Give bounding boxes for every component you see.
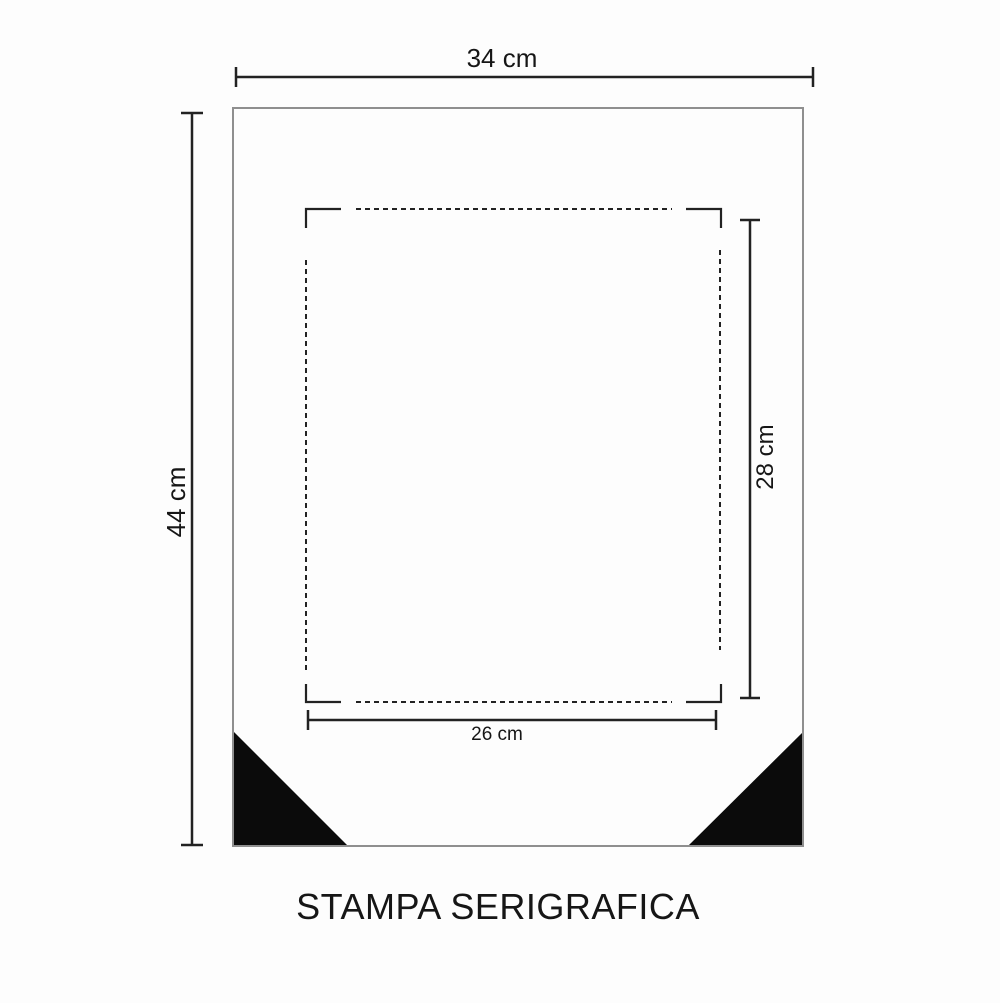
technical-drawing [0,0,1000,1003]
diagram-title: STAMPA SERIGRAFICA [198,888,798,926]
sheet-width-label: 34 cm [402,44,602,72]
print-area-corner-top-left [306,209,341,228]
bottom-right-corner-triangle [689,733,802,845]
print-area-corner-bottom-left [306,684,341,702]
bottom-left-corner-triangle [234,732,347,845]
print-width-label: 26 cm [397,725,597,745]
sheet-height-label: 44 cm [162,402,190,602]
print-area-corner-bottom-right [686,684,721,702]
diagram-canvas: 34 cm 44 cm 28 cm 26 cm STAMPA SERIGRAFI… [0,0,1000,1003]
print-height-label: 28 cm [753,377,779,537]
print-area-corner-top-right [686,209,721,228]
